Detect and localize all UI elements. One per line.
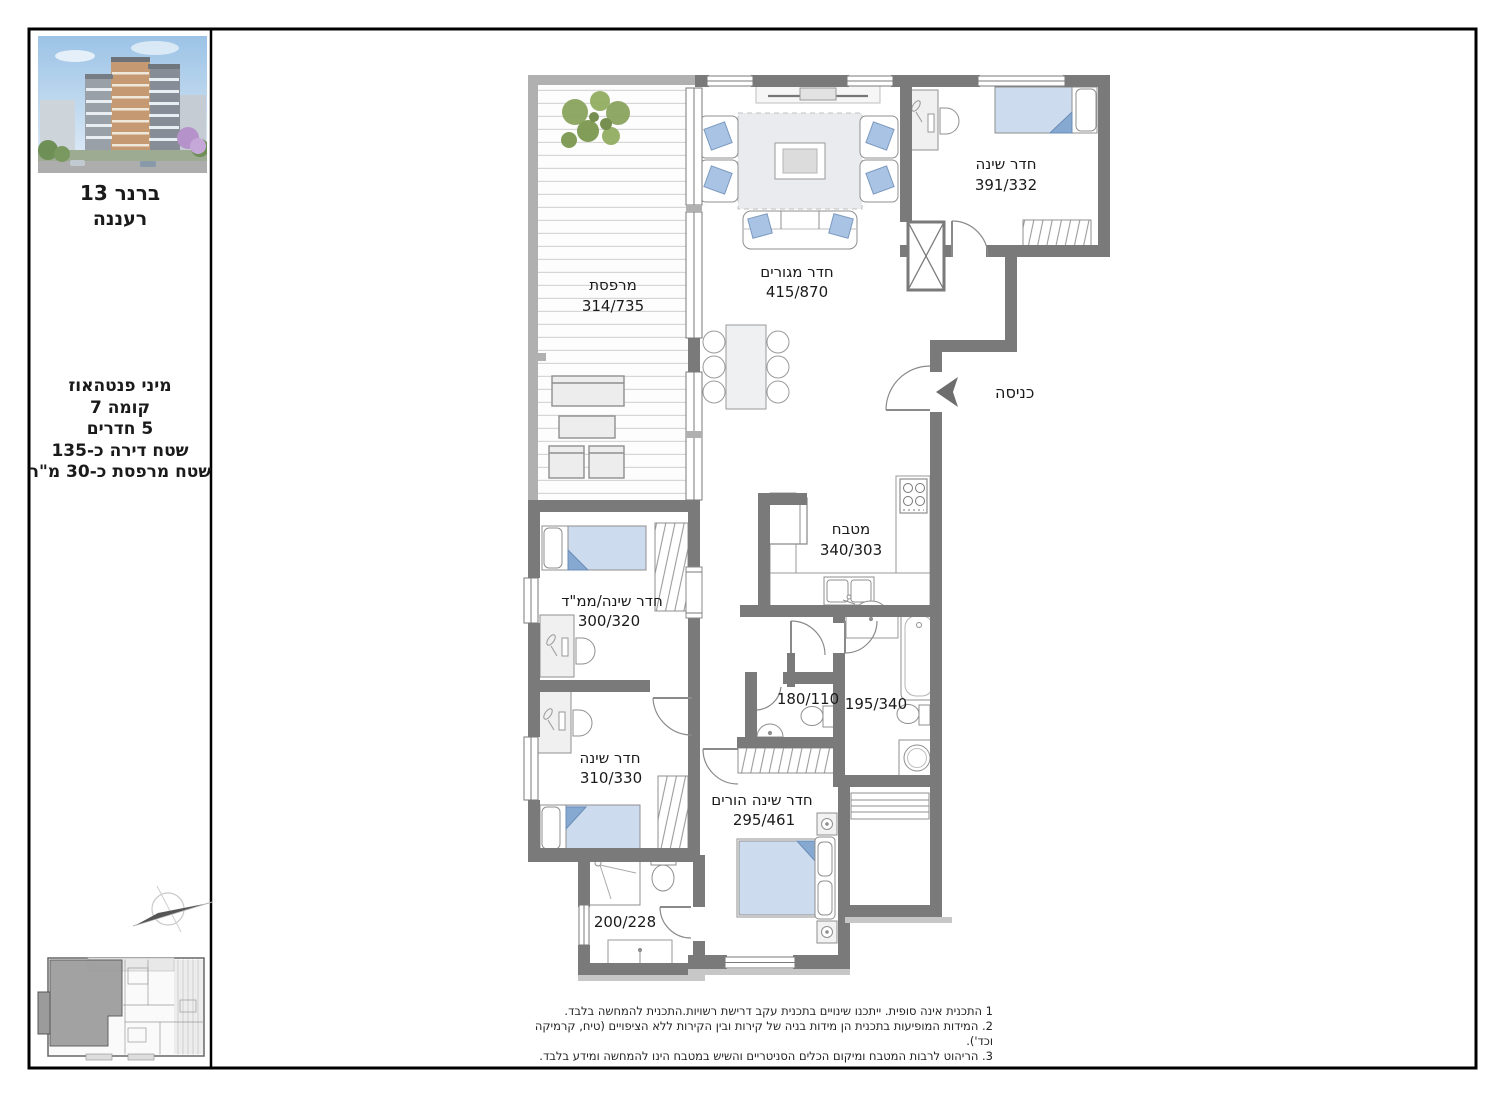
desk	[540, 615, 574, 677]
bedroom2-label: חדר שינה	[579, 749, 640, 767]
living-room	[700, 85, 898, 409]
floor-plan: מרפסת 314/735 חדר מגורים 415/870 חדר שינ…	[524, 75, 1110, 981]
key-plan	[38, 958, 204, 1060]
building-photo	[38, 36, 209, 173]
bedroom2-dims: 310/330	[580, 769, 642, 787]
project-city: רעננה	[30, 206, 210, 232]
chair	[573, 710, 592, 736]
kitchen-sink	[824, 577, 874, 605]
living-label: חדר מגורים	[760, 263, 833, 281]
unit-floor: קומה 7	[26, 398, 214, 420]
toilet-tank	[919, 705, 930, 725]
balcony-dims: 314/735	[582, 297, 644, 315]
unit-balcony-area: שטח מרפסת כ-30 מ"ר	[26, 462, 214, 484]
wardrobe	[658, 776, 688, 852]
bath1-room	[846, 601, 937, 776]
unit-rooms: 5 חדרים	[26, 419, 214, 441]
double-bed	[737, 837, 835, 919]
bath2-door	[660, 907, 691, 938]
note-1: 1 התכנית אינה סופית. ייתכנו שינויים בתכנ…	[513, 1004, 993, 1019]
mamad-label: חדר שינה/ממ"ד	[561, 592, 663, 610]
mamad-dims: 300/320	[578, 612, 640, 630]
unit-area: שטח דירה כ-135	[26, 441, 214, 463]
toilet-tank	[823, 706, 834, 727]
living-dims: 415/870	[766, 283, 828, 301]
bedroom1-label: חדר שינה	[975, 155, 1036, 173]
master-door	[703, 749, 738, 784]
floorplan-sheet: מרפסת 314/735 חדר מגורים 415/870 חדר שינ…	[0, 0, 1500, 1097]
chair	[576, 638, 595, 664]
note-2: 2. המידות המופיעות בתכנית הן מידות בניה …	[513, 1019, 993, 1049]
unit-info: מיני פנטהאוז קומה 7 5 חדרים שטח דירה כ-1…	[26, 376, 214, 484]
kitchen-label: מטבח	[832, 520, 870, 538]
dining-table	[726, 325, 766, 409]
bath1-dims: 195/340	[845, 695, 907, 713]
dining-set	[703, 325, 789, 409]
entrance-label: כניסה	[995, 383, 1034, 402]
bath2-dims: 200/228	[594, 913, 656, 931]
sofa	[743, 211, 857, 249]
stove	[900, 479, 927, 513]
north-compass-icon	[133, 886, 212, 932]
master-dims: 295/461	[733, 811, 795, 829]
bed	[542, 526, 646, 570]
wardrobe	[738, 748, 835, 773]
project-street: ברנר 13	[30, 180, 210, 206]
kitchen-dims: 340/303	[820, 541, 882, 559]
balcony-label: מרפסת	[589, 276, 637, 294]
bed	[540, 805, 640, 851]
washing-machine	[899, 740, 935, 776]
toilet	[801, 707, 823, 726]
dresser	[851, 793, 929, 819]
shaft	[908, 222, 944, 290]
project-caption: ברנר 13 רעננה	[30, 180, 210, 232]
bedroom1-dims: 391/332	[975, 176, 1037, 194]
wc-dims: 180/110	[777, 690, 839, 708]
entrance-door	[886, 366, 930, 410]
toilet	[652, 865, 674, 891]
entrance-arrow-icon	[936, 377, 958, 407]
hall-door	[791, 621, 825, 655]
note-3: 3. הריהוט לרבות המטבח ומיקום הכלים הסניט…	[513, 1049, 993, 1064]
master-label: חדר שינה הורים	[711, 791, 812, 809]
wc-room	[757, 706, 834, 737]
unit-type: מיני פנטהאוז	[26, 376, 214, 398]
bedroom1-door	[952, 221, 988, 257]
desk	[537, 691, 571, 753]
chair	[940, 108, 959, 134]
plan-drawing: מרפסת 314/735 חדר מגורים 415/870 חדר שינ…	[0, 0, 1500, 1097]
bedroom2-door	[653, 698, 692, 735]
disclaimer-notes: 1 התכנית אינה סופית. ייתכנו שינויים בתכנ…	[513, 1004, 993, 1064]
bed	[995, 87, 1097, 133]
wardrobe	[1023, 220, 1091, 246]
